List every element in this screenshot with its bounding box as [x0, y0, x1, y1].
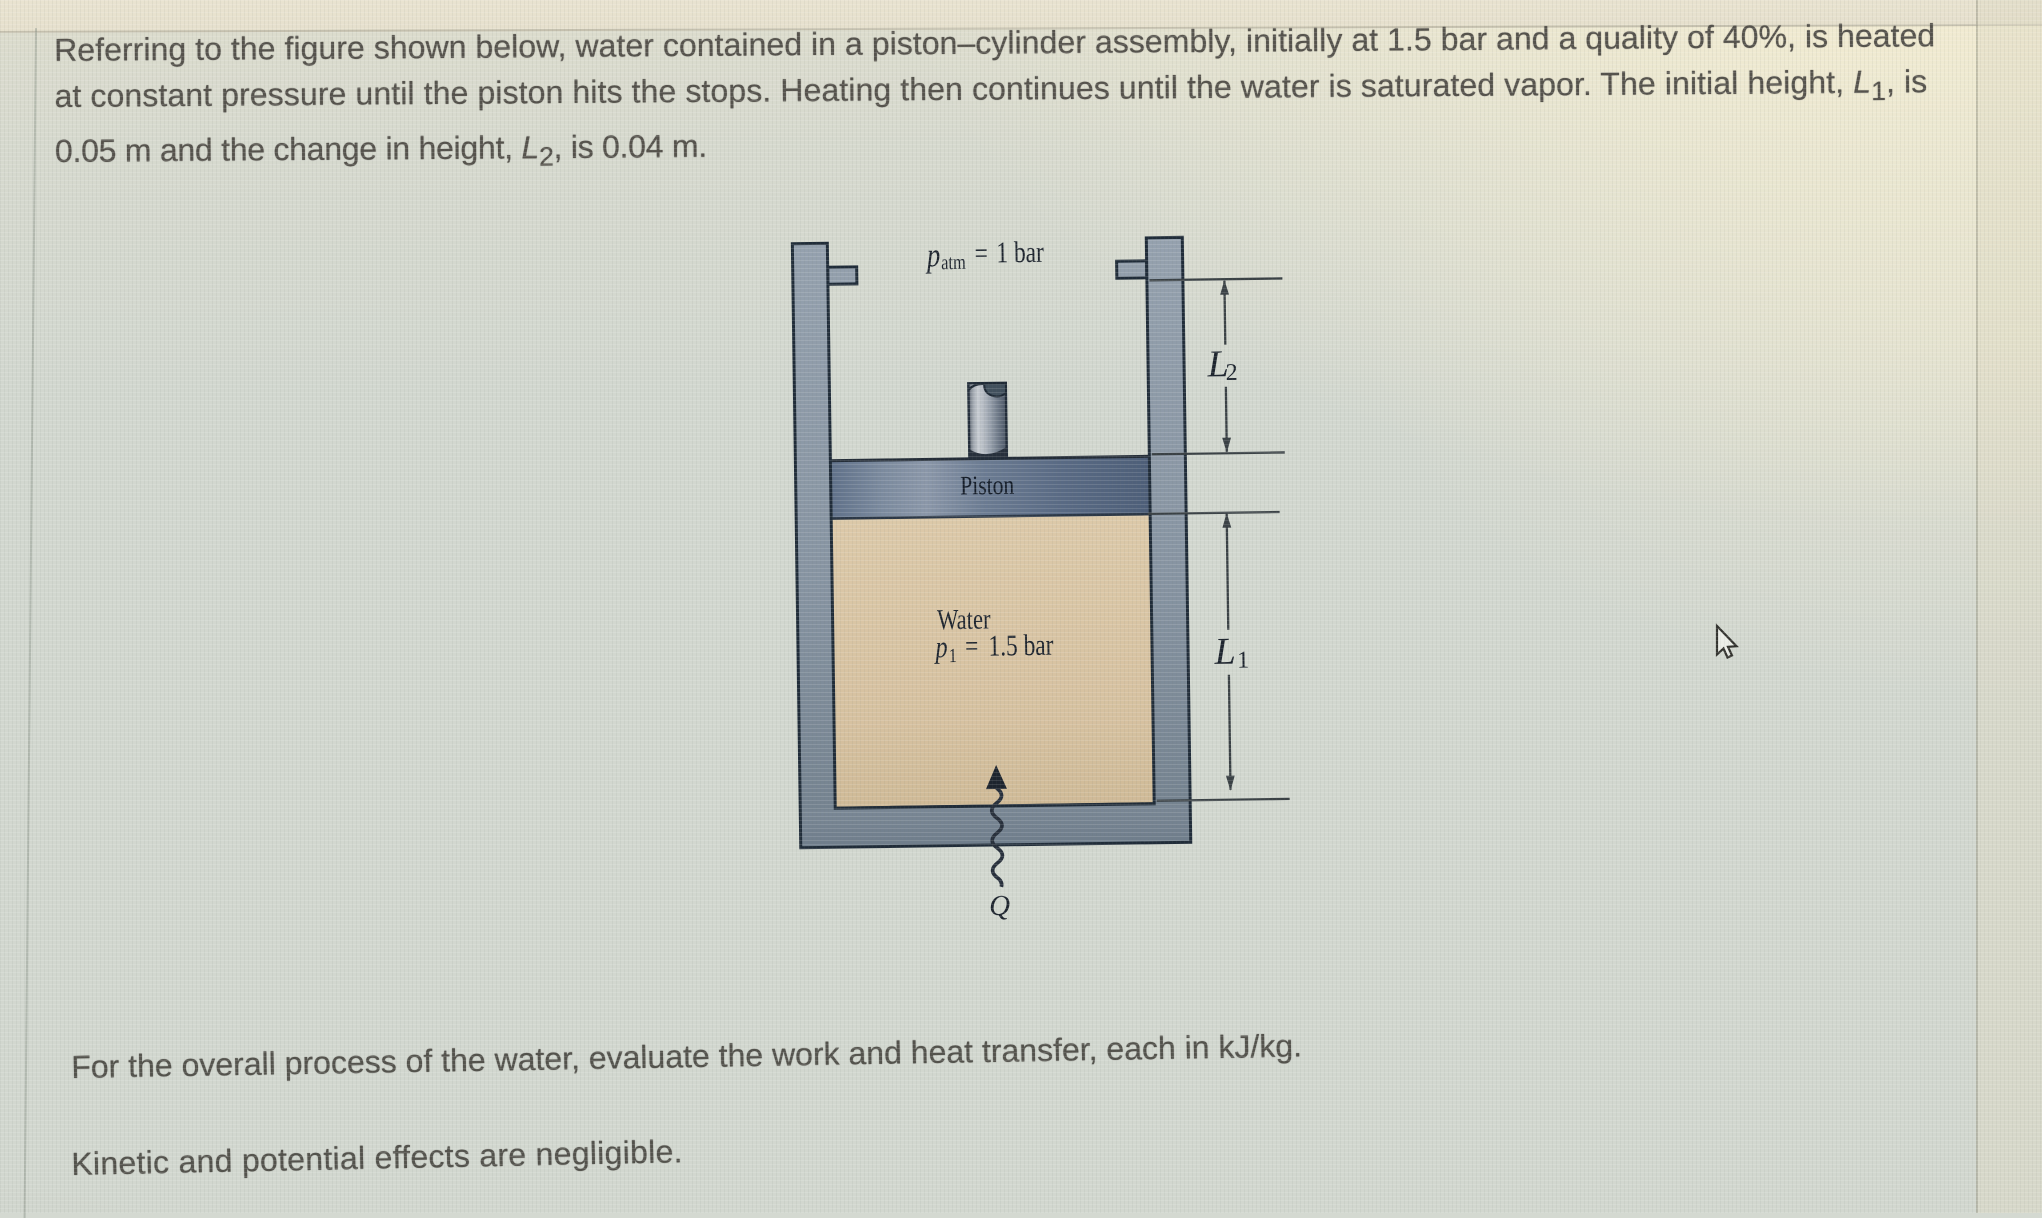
svg-text:L: L — [1213, 631, 1236, 673]
svg-text:1.5 bar: 1.5 bar — [988, 628, 1053, 662]
svg-text:1: 1 — [949, 644, 957, 666]
svg-text:atm: atm — [941, 251, 966, 275]
svg-text:1 bar: 1 bar — [996, 235, 1044, 269]
svg-text:p: p — [925, 236, 941, 274]
svg-text:Piston: Piston — [960, 471, 1014, 502]
svg-text:p: p — [934, 630, 948, 665]
svg-text:=: = — [974, 236, 988, 270]
svg-text:Q: Q — [989, 890, 1010, 922]
svg-text:1: 1 — [1237, 647, 1249, 673]
svg-text:2: 2 — [1226, 360, 1238, 386]
svg-text:=: = — [965, 629, 979, 663]
